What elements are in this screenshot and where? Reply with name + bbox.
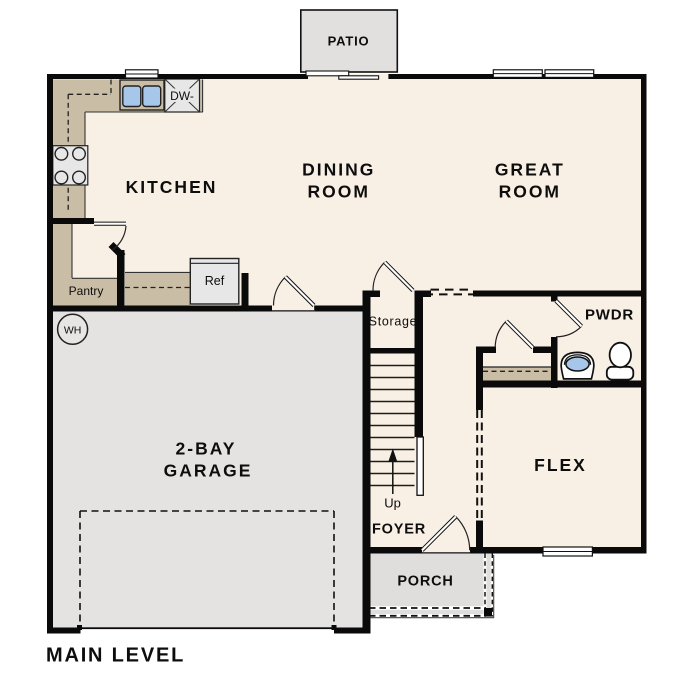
svg-text:KITCHEN: KITCHEN [126,177,218,197]
svg-text:ROOM: ROOM [499,182,561,202]
svg-text:GREAT: GREAT [495,160,565,180]
svg-text:FOYER: FOYER [372,522,426,538]
svg-text:PATIO: PATIO [328,33,370,48]
svg-text:Storage: Storage [369,315,418,329]
svg-text:PWDR: PWDR [585,307,634,324]
svg-text:DW-: DW- [170,89,194,103]
svg-text:Pantry: Pantry [69,284,104,298]
svg-text:Up: Up [384,496,401,511]
svg-text:WH: WH [64,325,82,337]
svg-text:GARAGE: GARAGE [164,461,253,481]
svg-text:MAIN LEVEL: MAIN LEVEL [46,645,185,667]
svg-text:ROOM: ROOM [307,182,369,202]
svg-text:Ref: Ref [205,274,225,288]
svg-text:FLEX: FLEX [534,455,587,475]
svg-text:PORCH: PORCH [397,574,453,590]
svg-text:DINING: DINING [302,160,375,180]
svg-text:2-BAY: 2-BAY [176,439,237,459]
